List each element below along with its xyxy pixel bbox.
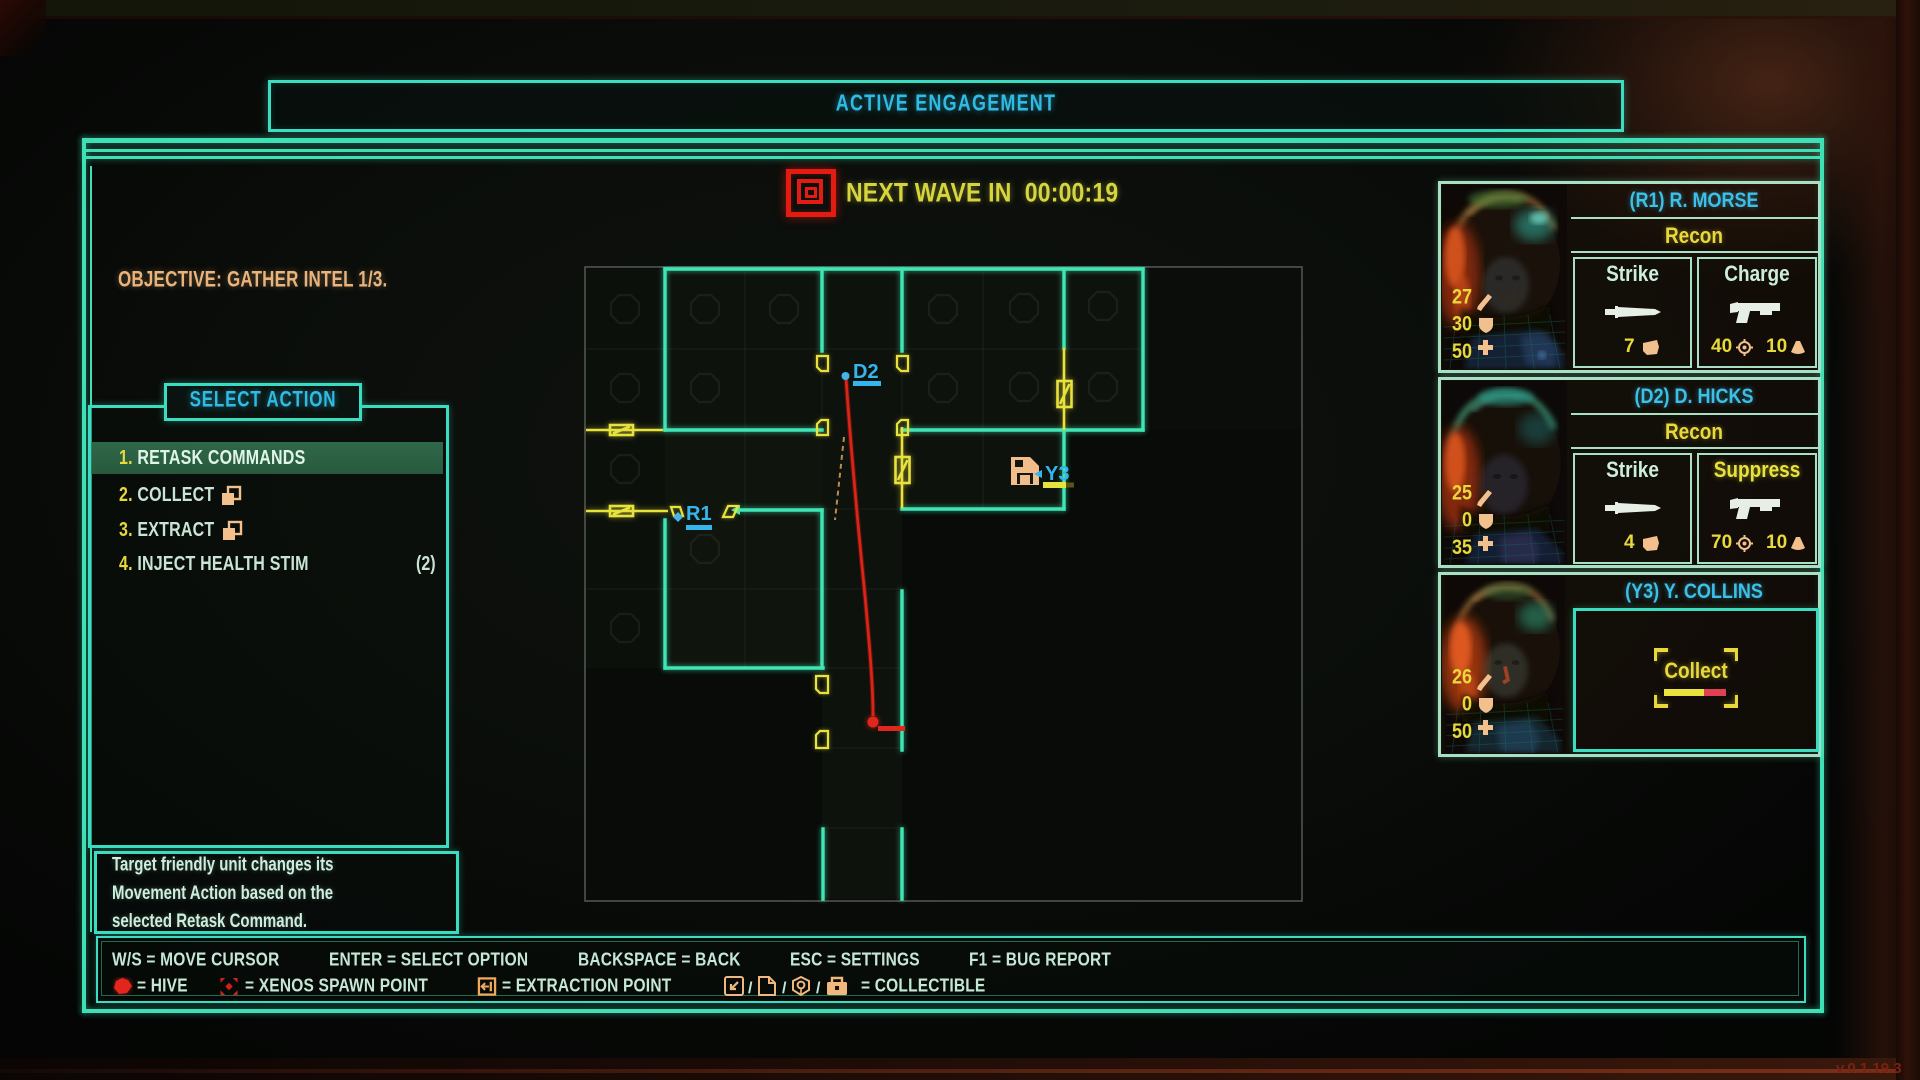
svg-text:/: / [816,980,821,997]
svg-text:Y3: Y3 [1045,463,1069,485]
svg-text:R1: R1 [686,503,712,525]
svg-text:D2: D2 [853,361,879,383]
svg-text:/: / [782,980,787,997]
svg-text:/: / [748,980,753,997]
